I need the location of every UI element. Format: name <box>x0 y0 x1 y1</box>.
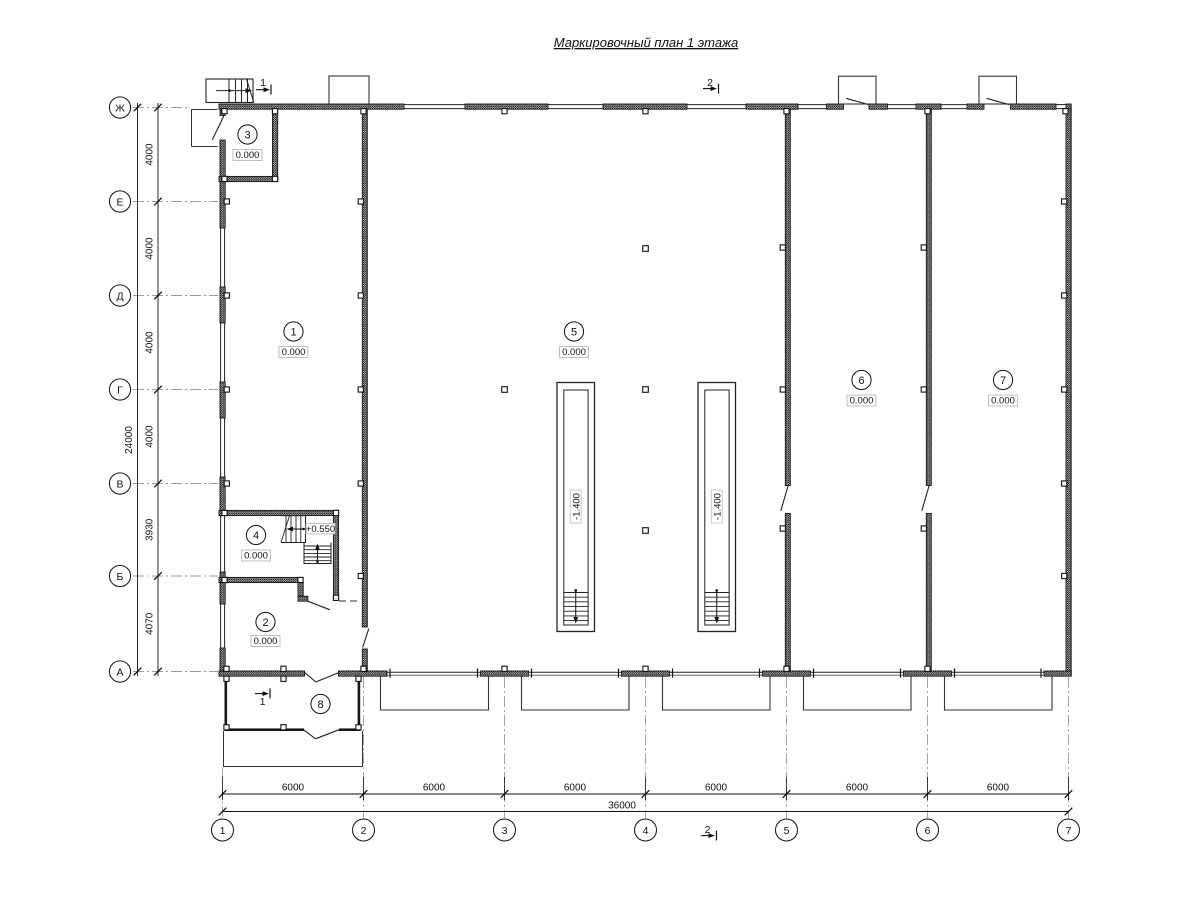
svg-text:5: 5 <box>784 825 790 837</box>
svg-text:6000: 6000 <box>423 783 446 794</box>
svg-text:-1.400: -1.400 <box>571 493 582 520</box>
svg-text:0.000: 0.000 <box>282 347 306 358</box>
svg-text:Г: Г <box>117 384 123 396</box>
svg-text:4000: 4000 <box>145 237 156 260</box>
svg-text:+0.550: +0.550 <box>306 524 335 535</box>
svg-text:6: 6 <box>925 825 931 837</box>
svg-text:4000: 4000 <box>145 143 156 166</box>
svg-text:6000: 6000 <box>987 783 1010 794</box>
svg-text:6000: 6000 <box>564 783 587 794</box>
svg-text:2: 2 <box>361 825 367 837</box>
svg-text:0.000: 0.000 <box>236 150 260 161</box>
svg-text:А: А <box>116 666 123 678</box>
svg-text:4: 4 <box>643 825 649 837</box>
svg-text:6000: 6000 <box>705 783 728 794</box>
svg-text:7: 7 <box>1066 825 1072 837</box>
svg-text:3930: 3930 <box>145 518 156 541</box>
svg-text:7: 7 <box>1000 375 1006 387</box>
svg-text:0.000: 0.000 <box>991 396 1015 407</box>
svg-text:4070: 4070 <box>145 612 156 635</box>
svg-text:0.000: 0.000 <box>244 551 268 562</box>
svg-text:24000: 24000 <box>124 426 135 454</box>
svg-text:8: 8 <box>317 699 323 711</box>
svg-text:Е: Е <box>116 196 123 208</box>
svg-text:3: 3 <box>244 129 250 141</box>
svg-text:0.000: 0.000 <box>850 396 874 407</box>
svg-text:5: 5 <box>571 326 577 338</box>
svg-text:0.000: 0.000 <box>254 636 278 647</box>
svg-text:Д: Д <box>116 290 123 302</box>
svg-text:1: 1 <box>260 696 266 708</box>
svg-text:В: В <box>116 478 123 490</box>
svg-text:2: 2 <box>262 617 268 629</box>
svg-text:1: 1 <box>260 77 266 89</box>
svg-text:4000: 4000 <box>145 331 156 354</box>
svg-text:1: 1 <box>290 326 296 338</box>
svg-text:1: 1 <box>220 825 226 837</box>
svg-text:3: 3 <box>502 825 508 837</box>
svg-text:Маркировочный план 1 этажа: Маркировочный план 1 этажа <box>554 35 739 50</box>
svg-text:6: 6 <box>858 375 864 387</box>
svg-text:6000: 6000 <box>846 783 869 794</box>
svg-text:Б: Б <box>117 571 124 583</box>
svg-text:6000: 6000 <box>282 783 305 794</box>
svg-text:36000: 36000 <box>608 801 636 812</box>
svg-text:4: 4 <box>253 530 259 542</box>
svg-text:-1.400: -1.400 <box>712 493 723 520</box>
svg-text:4000: 4000 <box>145 425 156 448</box>
svg-text:0.000: 0.000 <box>562 347 586 358</box>
svg-text:Ж: Ж <box>115 102 125 114</box>
